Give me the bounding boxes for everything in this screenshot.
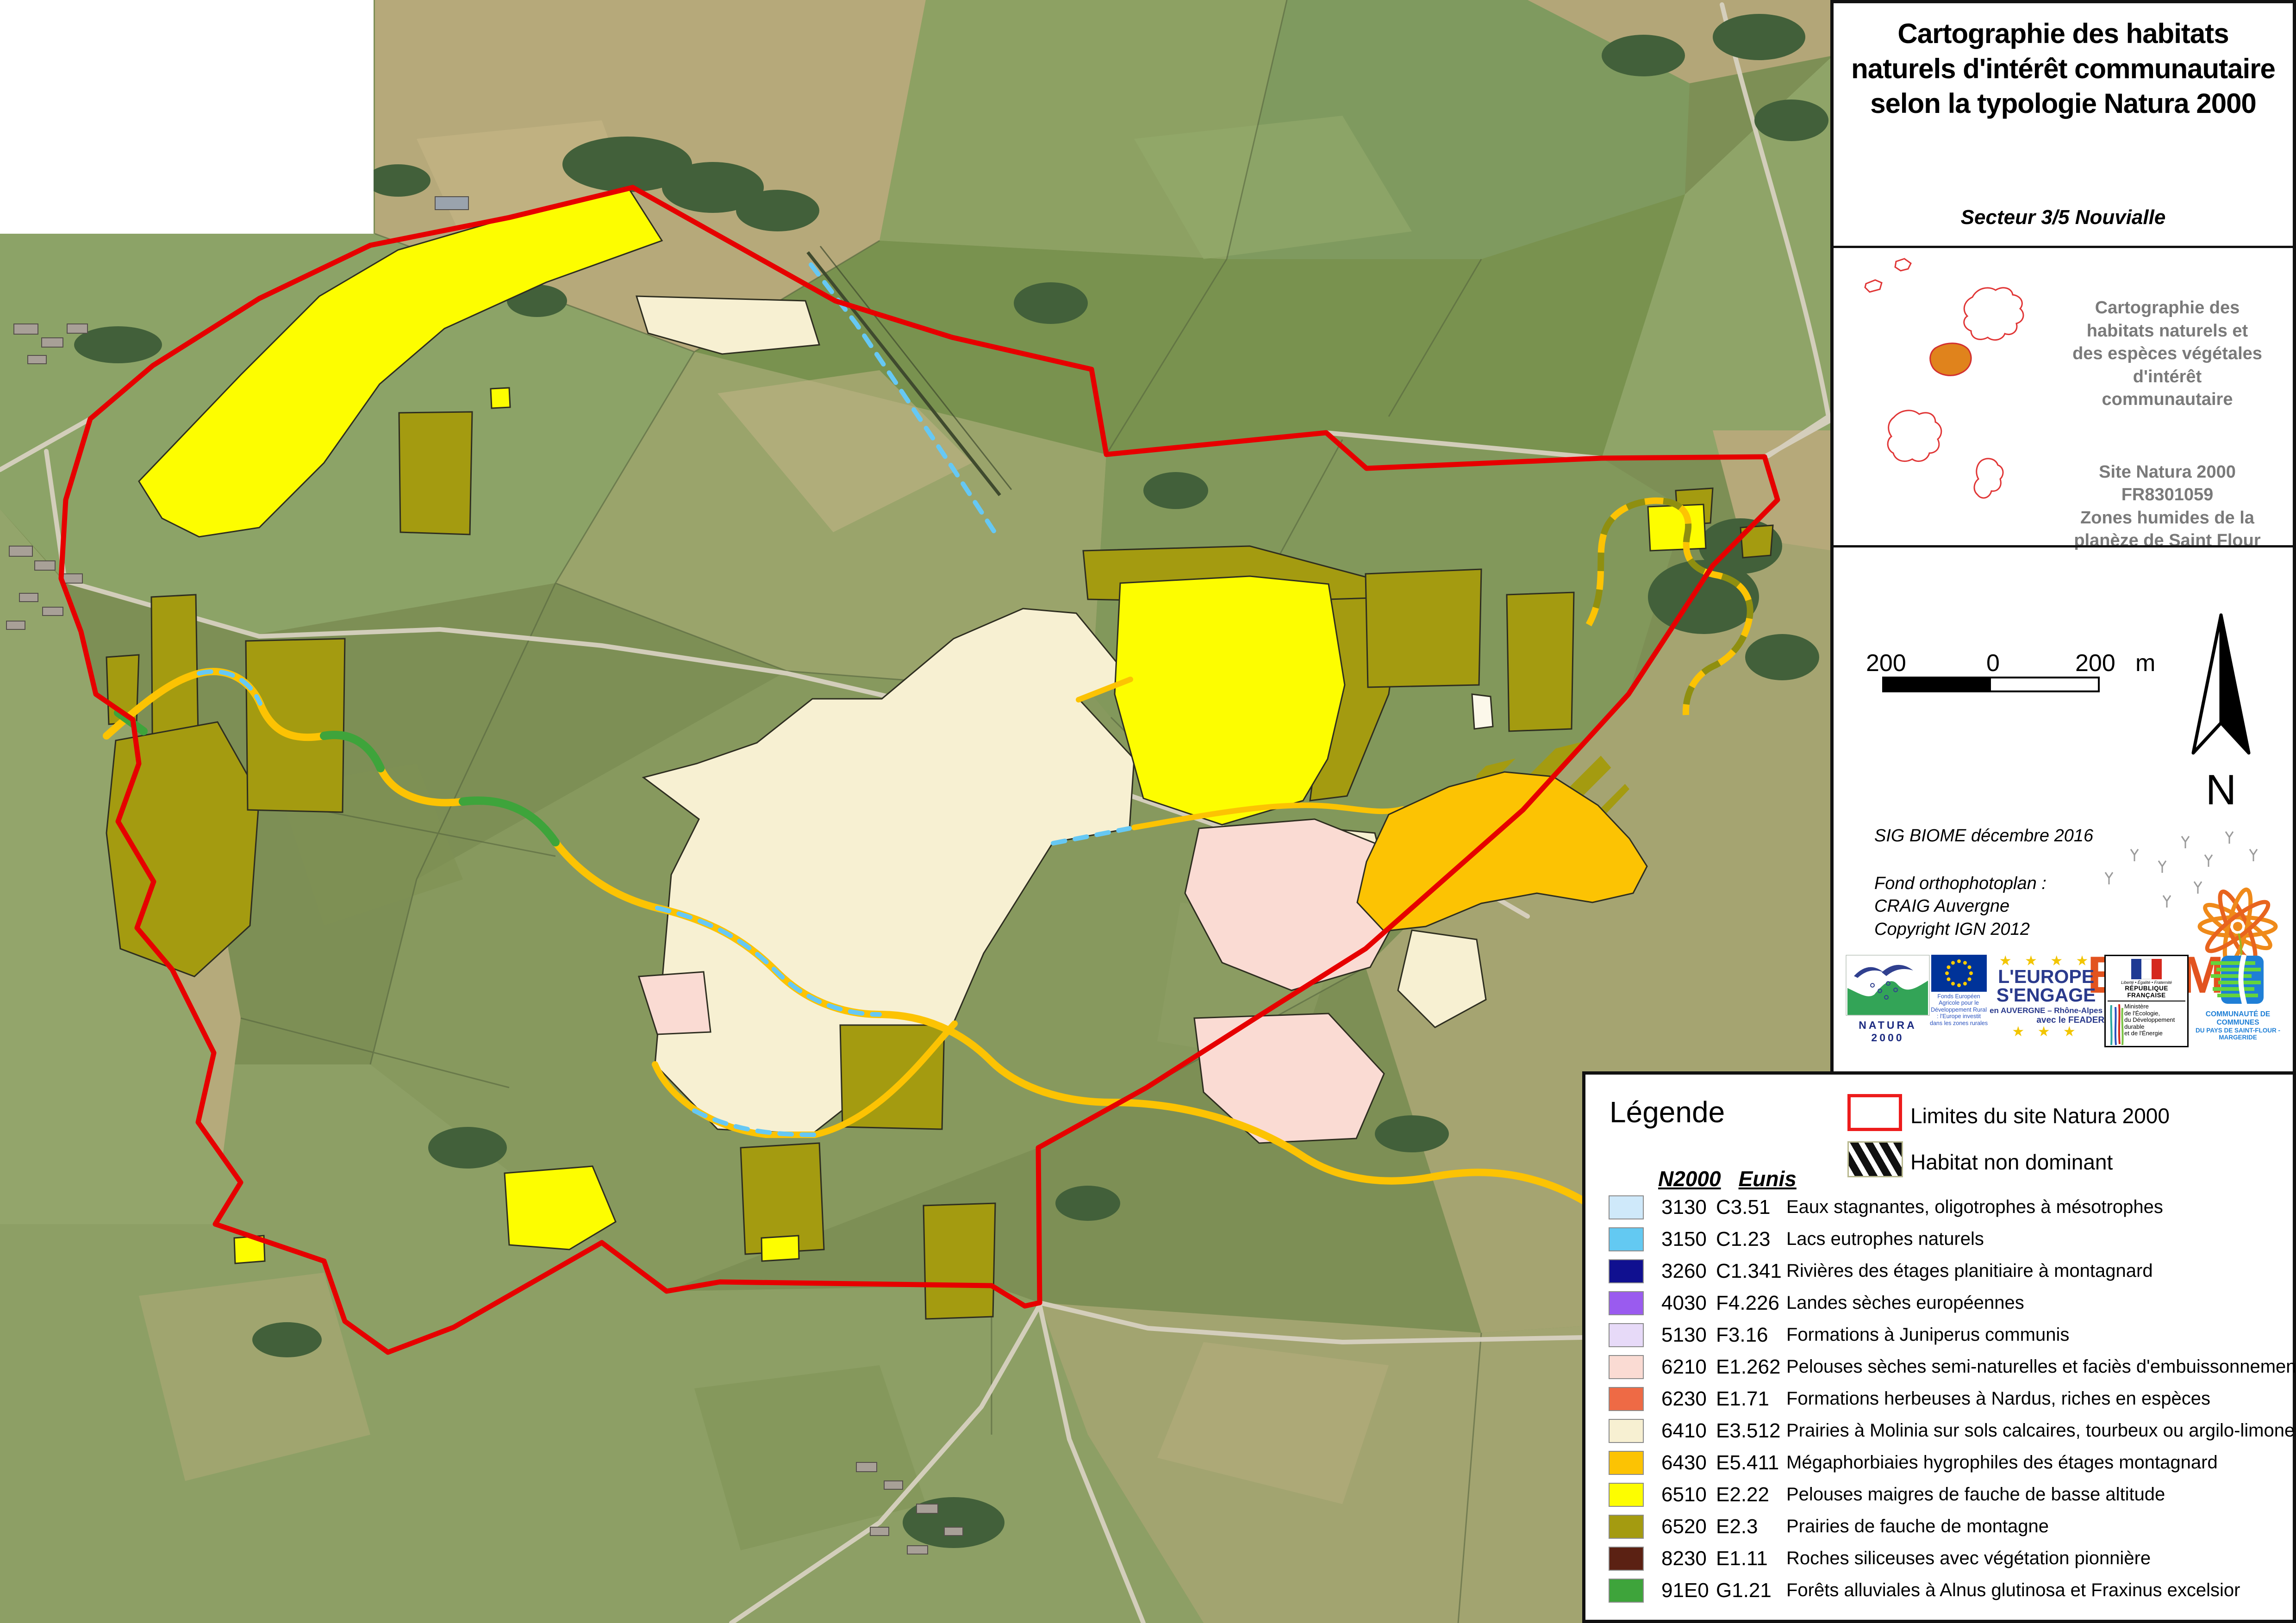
eunis-code: E2.22 — [1716, 1483, 1786, 1506]
eu-flag-icon — [1931, 955, 1987, 992]
french-flag-icon — [2131, 959, 2162, 979]
eu-flag-caption: Fonds Européen Agricole pour le Développ… — [1930, 993, 1988, 1026]
europe-line1: L'EUROPE — [1988, 967, 2104, 986]
legend-title: Légende — [1610, 1095, 1725, 1129]
legend-row: 6430 E5.411 Mégaphorbiaies hygrophiles d… — [1609, 1447, 2285, 1479]
scale-left-label: 200 — [1866, 649, 1906, 677]
eunis-code: C1.341 — [1716, 1260, 1786, 1283]
legend-row: 8230 E1.11 Roches siliceuses avec végéta… — [1609, 1542, 2285, 1574]
col-n2000: N2000 — [1658, 1167, 1721, 1191]
ministere-logo: Liberté • Égalité • Fraternité RÉPUBLIQU… — [2104, 955, 2189, 1047]
legend-panel: Légende Limites du site Natura 2000 Habi… — [1582, 1071, 2296, 1623]
habitat-label: Prairies à Molinia sur sols calcaires, t… — [1786, 1420, 2296, 1441]
eunis-code: G1.21 — [1716, 1579, 1786, 1602]
habitat-color-swatch — [1609, 1323, 1644, 1347]
legend-row: 91E0 G1.21 Forêts alluviales à Alnus glu… — [1609, 1574, 2285, 1606]
credit-sources: Fond orthophotoplan : CRAIG Auvergne Cop… — [1874, 872, 2046, 941]
scale-bar-filled — [1884, 678, 1991, 690]
map-description: Cartographie des habitats naturels et de… — [2050, 274, 2284, 575]
locator-current-sector — [1930, 343, 1971, 376]
scale-bar — [1882, 677, 2100, 692]
north-arrow-icon — [2182, 609, 2260, 767]
scale-unit-label: m — [2135, 649, 2155, 677]
habitat-color-swatch — [1609, 1387, 1644, 1411]
eunis-code: E1.71 — [1716, 1387, 1786, 1411]
legend-row: 6410 E3.512 Prairies à Molinia sur sols … — [1609, 1415, 2285, 1447]
habitat-label: Lacs eutrophes naturels — [1786, 1229, 1984, 1250]
n2000-code: 4030 — [1661, 1292, 1716, 1315]
n2000-code: 6210 — [1661, 1356, 1716, 1379]
north-label: N — [2182, 766, 2260, 815]
habitat-label: Formations à Juniperus communis — [1786, 1325, 2069, 1345]
n2000-code: 3130 — [1661, 1196, 1716, 1219]
legend-column-header: N2000Eunis — [1658, 1166, 1814, 1191]
n2000-code: 8230 — [1661, 1547, 1716, 1570]
habitat-color-swatch — [1609, 1547, 1644, 1571]
dandelion-seeds-icon — [2105, 832, 2257, 908]
habitat-color-swatch — [1609, 1355, 1644, 1379]
natura2000-label: NATURA 2000 — [1846, 1019, 1930, 1044]
n2000-code: 6230 — [1661, 1387, 1716, 1411]
habitat-color-swatch — [1609, 1579, 1644, 1603]
habitat-label: Pelouses sèches semi-naturelles et faciè… — [1786, 1356, 2296, 1377]
habitat-label: Pelouses maigres de fauche de basse alti… — [1786, 1484, 2165, 1505]
stars-icon: ★ ★ ★ — [1988, 1026, 2104, 1038]
locator-inset-map — [1841, 253, 2049, 540]
habitat-color-swatch — [1609, 1451, 1644, 1475]
description-text: Cartographie des habitats naturels et de… — [2050, 297, 2284, 411]
n2000-code: 91E0 — [1661, 1579, 1716, 1602]
sector-label: Secteur 3/5 Nouvialle — [1834, 206, 2293, 229]
natura2000-icon — [1846, 955, 1930, 1016]
communaute-label-1: COMMUNAUTÉ DE COMMUNES — [2189, 1010, 2287, 1027]
rf-label: RÉPUBLIQUE FRANÇAISE — [2108, 985, 2185, 1001]
communaute-icon — [2210, 955, 2266, 1009]
legend-row: 3260 C1.341 Rivières des étages planitia… — [1609, 1255, 2285, 1287]
divider — [1834, 545, 2293, 547]
credit-sig: SIG BIOME décembre 2016 — [1874, 826, 2093, 846]
habitat-label: Mégaphorbiaies hygrophiles des étages mo… — [1786, 1452, 2218, 1473]
eunis-code: E1.262 — [1716, 1356, 1786, 1379]
n2000-code: 3150 — [1661, 1228, 1716, 1251]
eunis-code: C1.23 — [1716, 1228, 1786, 1251]
sidebar-panel: Cartographie des habitats naturels d'int… — [1830, 0, 2296, 1076]
habitat-label: Eaux stagnantes, oligotrophes à mésotrop… — [1786, 1197, 2163, 1218]
eunis-code: E1.11 — [1716, 1547, 1786, 1570]
legend-row: 6520 E2.3 Prairies de fauche de montagne — [1609, 1511, 2285, 1542]
n2000-code: 5130 — [1661, 1324, 1716, 1347]
legend-row: 6510 E2.22 Pelouses maigres de fauche de… — [1609, 1479, 2285, 1511]
habitat-color-swatch — [1609, 1195, 1644, 1219]
legend-row: 5130 F3.16 Formations à Juniperus commun… — [1609, 1319, 2285, 1351]
color-sticks-icon — [2109, 1003, 2124, 1046]
habitat-color-swatch — [1609, 1483, 1644, 1507]
communaute-label-2: DU PAYS DE SAINT-FLOUR - MARGERIDE — [2189, 1027, 2287, 1041]
habitat-label: Roches siliceuses avec végétation pionni… — [1786, 1548, 2151, 1569]
communaute-communes-logo: COMMUNAUTÉ DE COMMUNES DU PAYS DE SAINT-… — [2189, 955, 2287, 1041]
site-boundary-swatch — [1847, 1094, 1902, 1131]
col-eunis: Eunis — [1739, 1167, 1797, 1191]
n2000-code: 6410 — [1661, 1419, 1716, 1443]
page-title: Cartographie des habitats naturels d'int… — [1836, 16, 2290, 121]
natura2000-logo: NATURA 2000 — [1846, 955, 1930, 1044]
legend-rows: 3130 C3.51 Eaux stagnantes, oligotrophes… — [1609, 1191, 2285, 1606]
scale-zero-label: 0 — [1986, 649, 2000, 677]
partner-logos: NATURA 2000 Fonds Européen Agricole pour… — [1846, 955, 2287, 1052]
divider — [1834, 246, 2293, 248]
habitat-color-swatch — [1609, 1419, 1644, 1443]
eunis-code: E2.3 — [1716, 1515, 1786, 1538]
europe-line2: S'ENGAGE — [1988, 986, 2104, 1004]
eu-flag-logo: Fonds Européen Agricole pour le Développ… — [1930, 955, 1988, 1026]
habitat-label: Forêts alluviales à Alnus glutinosa et F… — [1786, 1580, 2240, 1601]
rf-motto: Liberté • Égalité • Fraternité — [2106, 980, 2187, 985]
orthophoto-gap — [0, 0, 374, 234]
scale-right-label: 200 — [2075, 649, 2115, 677]
habitat-color-swatch — [1609, 1515, 1644, 1539]
n2000-code: 6430 — [1661, 1451, 1716, 1474]
stars-icon: ★ ★ ★ ★ — [1988, 955, 2104, 967]
legend-row: 6230 E1.71 Formations herbeuses à Nardus… — [1609, 1383, 2285, 1415]
scale-bar-empty — [1991, 678, 2098, 690]
habitat-color-swatch — [1609, 1259, 1644, 1283]
site-reference: Site Natura 2000 FR8301059 Zones humides… — [2050, 461, 2284, 553]
europe-sengage-logo: ★ ★ ★ ★ L'EUROPE S'ENGAGE en AUVERGNE – … — [1988, 955, 2104, 1038]
eunis-code: F3.16 — [1716, 1324, 1786, 1347]
habitat-color-swatch — [1609, 1227, 1644, 1251]
site-boundary-label: Limites du site Natura 2000 — [1910, 1103, 2170, 1128]
legend-row: 3130 C3.51 Eaux stagnantes, oligotrophes… — [1609, 1191, 2285, 1223]
habitat-color-swatch — [1609, 1291, 1644, 1315]
legend-row: 4030 F4.226 Landes sèches européennes — [1609, 1287, 2285, 1319]
map-sheet: Cartographie des habitats naturels d'int… — [0, 0, 2296, 1623]
n2000-code: 6520 — [1661, 1515, 1716, 1538]
habitat-label: Landes sèches européennes — [1786, 1293, 2024, 1313]
ministere-label: Ministère de l'Écologie, du Développemen… — [2124, 1003, 2175, 1046]
habitat-label: Rivières des étages planitiaire à montag… — [1786, 1261, 2153, 1281]
eunis-code: C3.51 — [1716, 1196, 1786, 1219]
eunis-code: E5.411 — [1716, 1451, 1786, 1474]
habitat-label: Formations herbeuses à Nardus, riches en… — [1786, 1388, 2210, 1409]
habitat-label: Prairies de fauche de montagne — [1786, 1516, 2049, 1537]
europe-sub1: en AUVERGNE – Rhône-Alpes — [1988, 1006, 2104, 1015]
non-dominant-swatch — [1847, 1141, 1903, 1177]
eunis-code: E3.512 — [1716, 1419, 1786, 1443]
legend-row: 6210 E1.262 Pelouses sèches semi-naturel… — [1609, 1351, 2285, 1383]
eunis-code: F4.226 — [1716, 1292, 1786, 1315]
legend-row: 3150 C1.23 Lacs eutrophes naturels — [1609, 1223, 2285, 1255]
n2000-code: 3260 — [1661, 1260, 1716, 1283]
non-dominant-label: Habitat non dominant — [1910, 1150, 2113, 1175]
n2000-code: 6510 — [1661, 1483, 1716, 1506]
